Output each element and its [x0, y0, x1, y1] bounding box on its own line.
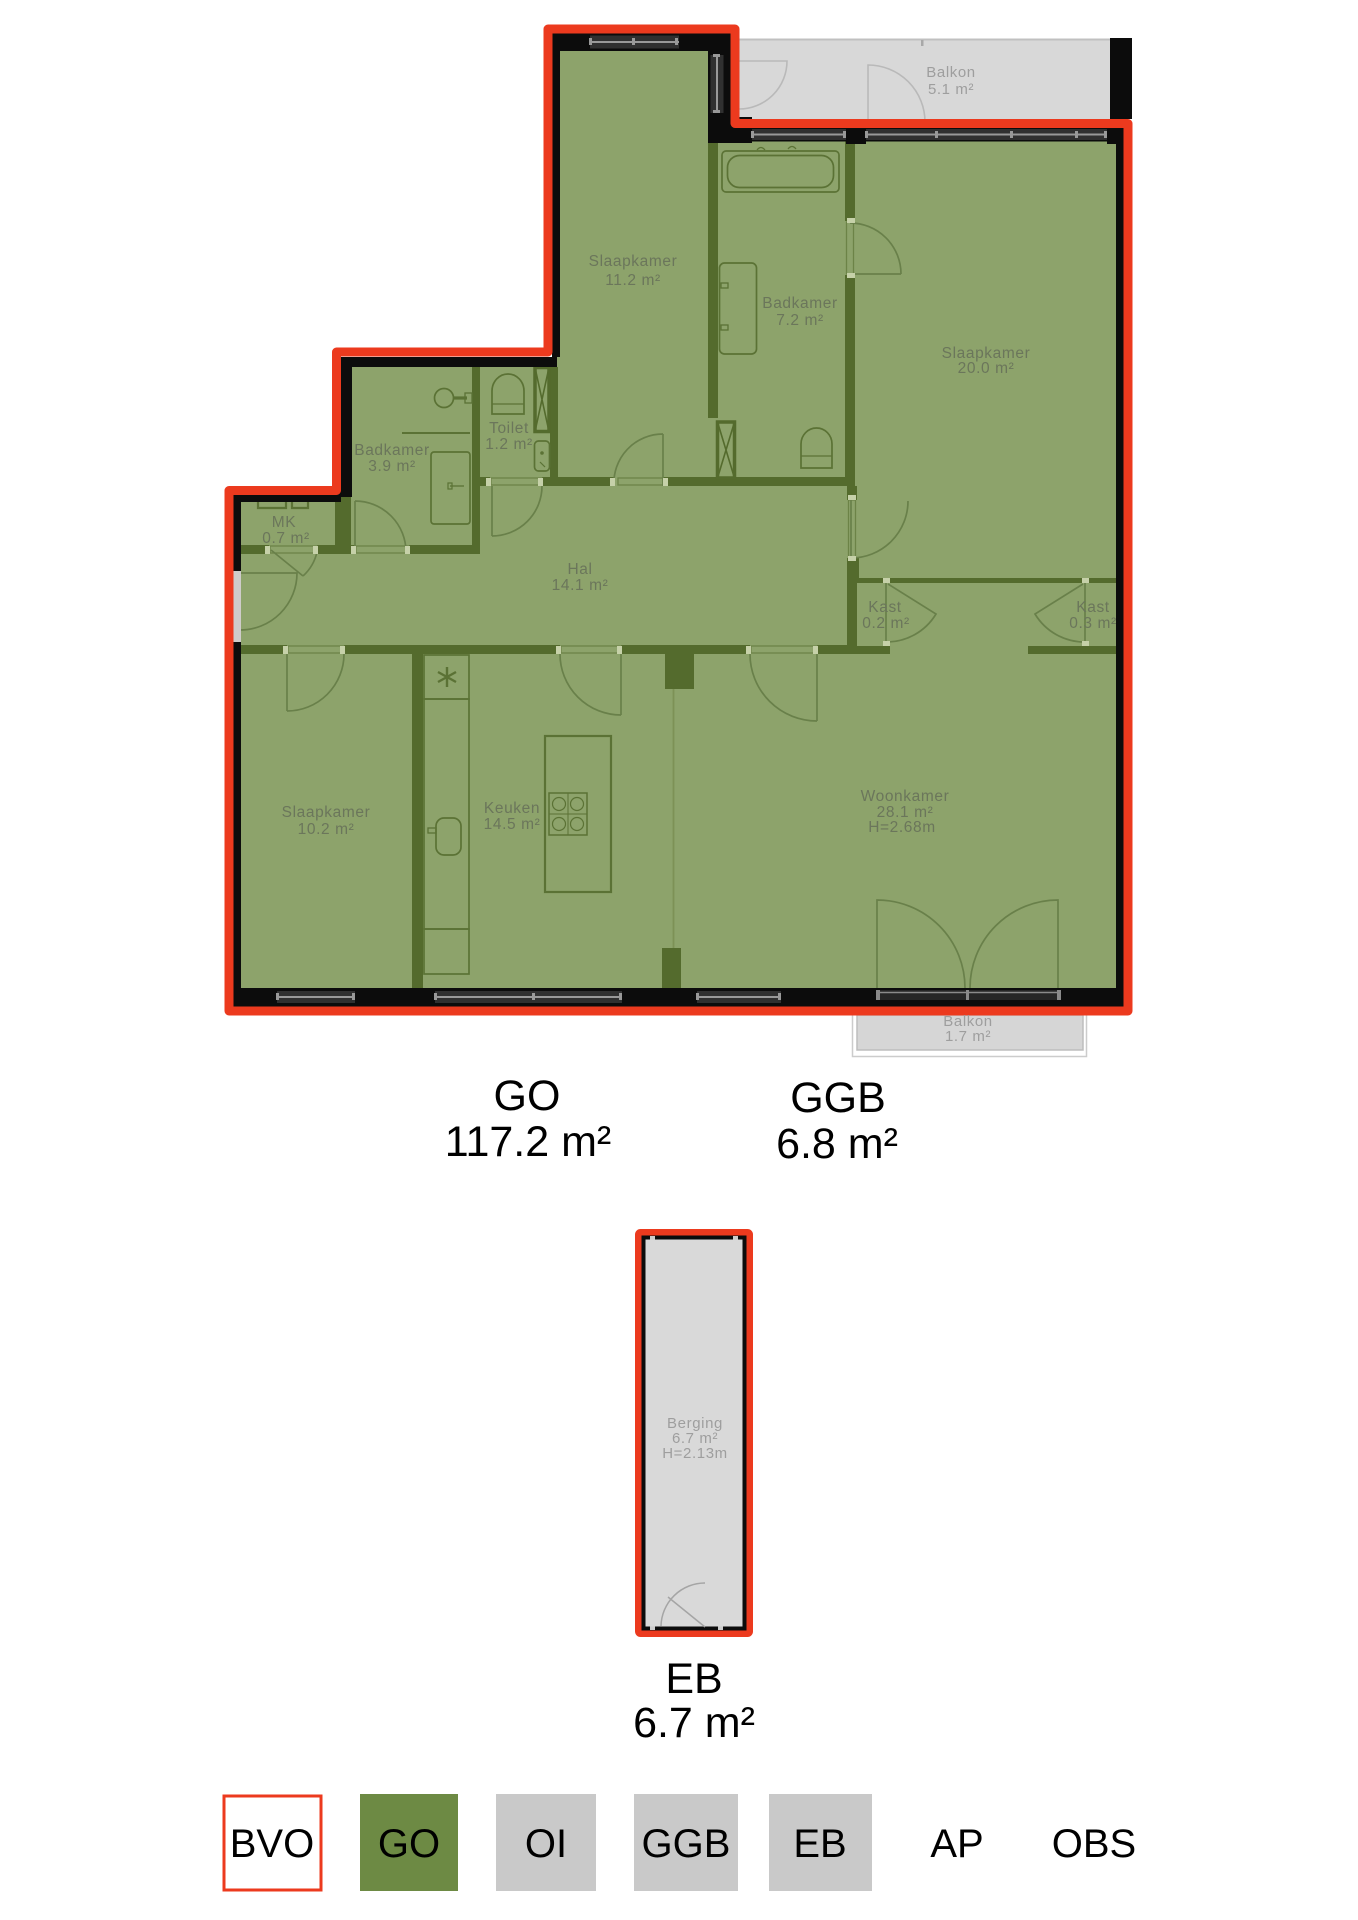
svg-text:Toilet: Toilet — [489, 420, 529, 437]
svg-text:OBS: OBS — [1052, 1822, 1136, 1866]
svg-text:Badkamer: Badkamer — [354, 442, 429, 459]
svg-text:5.1 m²: 5.1 m² — [928, 81, 974, 98]
svg-text:GGB: GGB — [790, 1074, 886, 1122]
svg-text:GO: GO — [378, 1822, 440, 1866]
svg-text:EB: EB — [793, 1822, 846, 1866]
svg-text:Badkamer: Badkamer — [762, 295, 837, 312]
svg-text:1.2 m²: 1.2 m² — [485, 436, 533, 453]
svg-text:GGB: GGB — [642, 1822, 731, 1866]
svg-text:6.8 m²: 6.8 m² — [776, 1120, 898, 1168]
svg-text:Kast: Kast — [1076, 599, 1110, 616]
svg-text:BVO: BVO — [230, 1822, 314, 1866]
svg-text:Balkon: Balkon — [926, 64, 975, 81]
svg-text:0.2 m²: 0.2 m² — [862, 615, 910, 632]
svg-text:11.2 m²: 11.2 m² — [605, 272, 661, 289]
svg-text:H=2.13m: H=2.13m — [662, 1445, 727, 1462]
svg-text:Slaapkamer: Slaapkamer — [589, 253, 678, 270]
svg-text:7.2 m²: 7.2 m² — [776, 312, 824, 329]
svg-text:Hal: Hal — [567, 561, 592, 578]
svg-text:Kast: Kast — [868, 599, 902, 616]
svg-text:0.7 m²: 0.7 m² — [262, 530, 310, 547]
svg-text:EB: EB — [665, 1655, 722, 1703]
svg-text:Slaapkamer: Slaapkamer — [282, 804, 371, 821]
svg-text:3.9 m²: 3.9 m² — [368, 458, 416, 475]
svg-text:14.5 m²: 14.5 m² — [484, 816, 541, 833]
svg-text:10.2 m²: 10.2 m² — [298, 821, 355, 838]
svg-text:117.2 m²: 117.2 m² — [445, 1118, 612, 1166]
svg-text:6.7 m²: 6.7 m² — [633, 1699, 755, 1747]
svg-text:0.3 m²: 0.3 m² — [1069, 615, 1117, 632]
svg-text:MK: MK — [272, 514, 297, 531]
svg-text:GO: GO — [494, 1072, 561, 1120]
svg-text:20.0 m²: 20.0 m² — [958, 360, 1015, 377]
svg-text:14.1 m²: 14.1 m² — [552, 577, 609, 594]
svg-text:OI: OI — [525, 1822, 567, 1866]
svg-text:AP: AP — [930, 1822, 983, 1866]
svg-text:1.7 m²: 1.7 m² — [945, 1028, 991, 1045]
svg-text:Keuken: Keuken — [484, 800, 540, 817]
svg-text:H=2.68m: H=2.68m — [868, 819, 936, 836]
svg-text:Woonkamer: Woonkamer — [861, 788, 950, 805]
